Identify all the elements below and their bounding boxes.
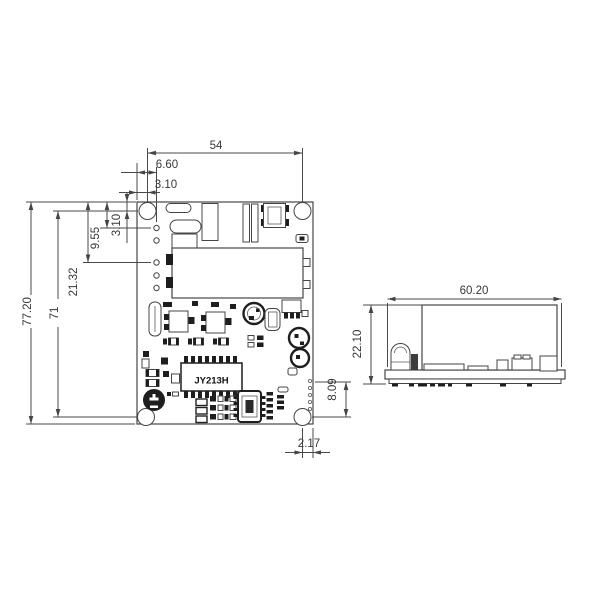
- dim-pin-strip-label: 8.09: [327, 378, 339, 400]
- pcb-side-view: [385, 305, 565, 387]
- technical-drawing-canvas: JY213H: [0, 0, 600, 600]
- resistor-rows: [210, 396, 236, 420]
- dim-pin-row2-label: 21.32: [68, 268, 80, 297]
- electrolytic-capacitor-4: [144, 390, 165, 411]
- dim-pin-column-offset-label: 6.60: [156, 159, 178, 171]
- electrolytic-capacitor-3: [291, 349, 309, 367]
- smd-capacitor-row: [163, 338, 229, 345]
- dim-board-length-label: 60.20: [460, 285, 489, 297]
- pcb-top-view: JY213H: [137, 202, 313, 426]
- dim-hole-offset-y-label: 3.10: [111, 214, 123, 236]
- dim-hole-offset-right-label: 2.17: [298, 438, 320, 450]
- transformer-shield-side: [422, 305, 557, 370]
- left-slot-connector: [149, 302, 161, 336]
- dim-hole-pitch-x-label: 54: [210, 140, 223, 152]
- ic-part-number-label: JY213H: [194, 376, 228, 387]
- dim-pin-row1-label: 9.55: [90, 227, 102, 249]
- transformer-shield: [166, 248, 310, 298]
- electrolytic-capacitor-2: [289, 328, 309, 348]
- main-ic-chip: JY213H: [172, 356, 243, 398]
- coil-component: [265, 309, 280, 331]
- pcb-side-board: [385, 370, 565, 379]
- dim-overall-height-label: 22.10: [352, 330, 364, 359]
- pcb-dimension-drawing: JY213H: [0, 0, 600, 600]
- push-button: [296, 235, 308, 243]
- capacitor-side: [391, 344, 418, 371]
- capacitor-stack: [196, 399, 207, 423]
- electrolytic-capacitor-1: [244, 303, 265, 324]
- bottom-ic-chip: [234, 391, 266, 422]
- dim-board-height-label: 77.20: [22, 297, 34, 326]
- smd-inductor: [261, 204, 289, 228]
- dim-hole-offset-x-label: 3.10: [155, 179, 177, 191]
- dim-hole-pitch-y-label: 71: [49, 307, 61, 320]
